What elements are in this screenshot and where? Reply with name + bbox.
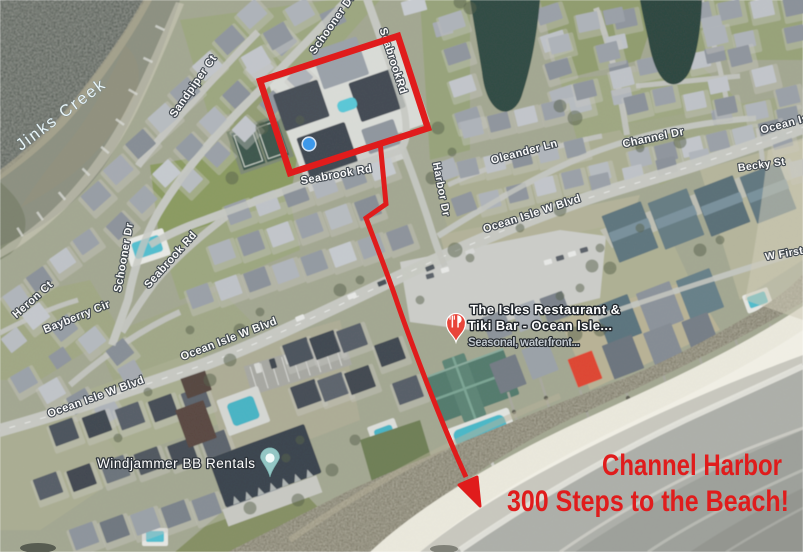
svg-text:Channel Harbor: Channel Harbor: [602, 449, 782, 482]
svg-text:Tiki Bar - Ocean Isle...: Tiki Bar - Ocean Isle...: [468, 318, 612, 333]
svg-text:Seasonal, waterfront...: Seasonal, waterfront...: [468, 335, 580, 349]
svg-text:The Isles Restaurant &: The Isles Restaurant &: [470, 302, 620, 317]
svg-text:Windjammer BB Rentals: Windjammer BB Rentals: [97, 456, 255, 471]
svg-text:300 Steps to the Beach!: 300 Steps to the Beach!: [507, 485, 789, 518]
